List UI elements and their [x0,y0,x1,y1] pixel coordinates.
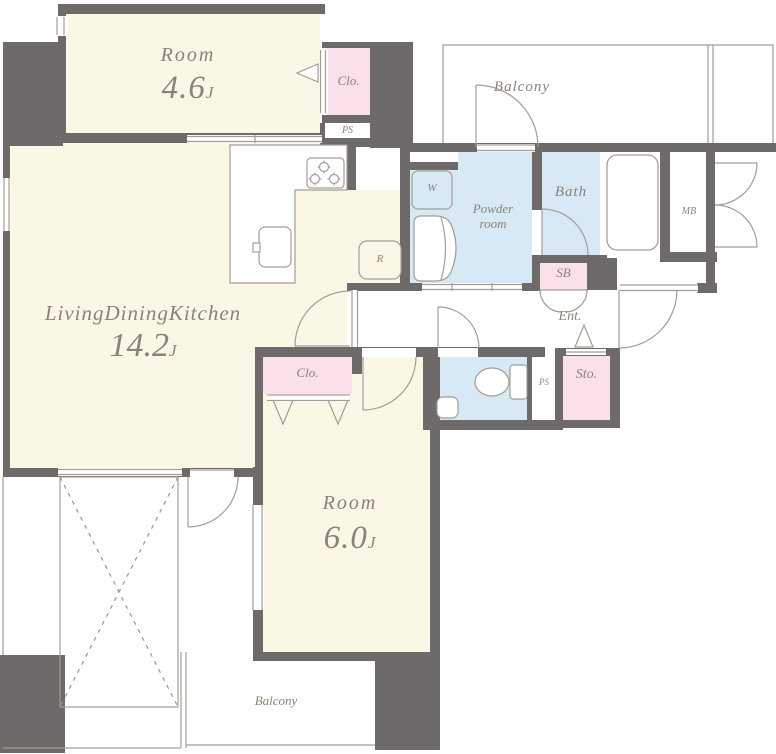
plan-linework [0,0,776,754]
ldk-area-value: 14.2 [109,327,169,364]
balcony-top-label: Balcony [472,79,572,96]
kitchen-sink-icon [253,227,291,267]
bedroom1-area-value: 4.6 [162,70,206,106]
bedroom2-area-unit: J [368,533,377,552]
closet-top-swing-marker [297,64,318,82]
powder-room-label: Powder room [462,202,524,232]
washer-space-label: W [412,182,452,195]
closet-middle-label: Clo. [263,366,352,381]
door-arc-bath [542,209,588,255]
bedroom1-area-label: 4.6J [128,70,248,108]
balcony-partition [708,45,713,143]
ldk-area-unit: J [169,341,177,360]
void-cross-hatch [60,477,178,707]
bedroom1-name-label: Room [138,44,238,67]
toilet-icon [475,365,527,399]
shoe-box-label: SB [540,266,587,281]
bedroom1-area-unit: J [206,83,215,102]
door-arc-terrace [188,477,238,527]
balcony-bottom-label: Balcony [226,694,326,709]
refrigerator-space-label: R [359,253,401,266]
pipe-shaft-lower-label: PS [532,377,556,387]
closet-middle-fold-marks [273,400,348,424]
door-arc-toilet [438,307,479,348]
corner-basin-icon [437,397,458,418]
door-arc-entrance [619,290,677,348]
door-arc-meter-box-lower [715,205,757,247]
pipe-shaft-top-label: PS [325,125,370,137]
bedroom2-area-label: 6.0J [290,520,410,558]
gas-stove-icon [307,158,344,188]
floor-plan: Room 4.6J LivingDiningKitchen 14.2J Room… [0,0,776,754]
door-arc-meter-box-upper [715,163,757,205]
entrance-step-marker [575,325,593,347]
bathtub-icon [607,155,658,250]
washbasin-icon [414,216,456,281]
bedroom2-name-label: Room [300,492,400,515]
closet-top-label: Clo. [327,74,370,89]
bedroom2-area-value: 6.0 [324,520,368,556]
bath-label: Bath [542,184,600,201]
door-arc-ldk [295,291,350,346]
ldk-area-label: 14.2J [58,326,228,365]
door-arc-bedroom2 [363,357,416,410]
meter-box-label: MB [670,206,708,218]
entrance-label: Ent. [540,309,600,325]
storage-label: Sto. [563,367,610,383]
ldk-name-label: LivingDiningKitchen [33,301,253,325]
